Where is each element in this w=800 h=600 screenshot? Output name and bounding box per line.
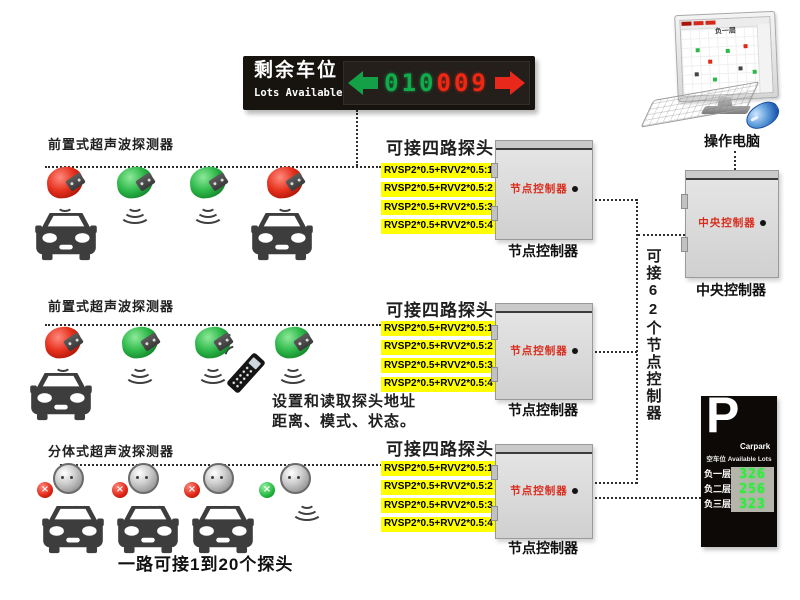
row1-channel-heading: 可接四路探头 xyxy=(386,140,494,157)
node-controller-panel-label: 节点控制器 xyxy=(496,184,592,195)
sign-title: 剩余车位 xyxy=(254,60,338,83)
parking-subtitle: 空车位 Available Lots xyxy=(701,457,777,464)
led-indicator-red: × xyxy=(184,482,200,498)
row3-label: 分体式超声波探测器 xyxy=(48,445,174,458)
connector-trunk-to-central xyxy=(638,234,685,236)
box-top-band xyxy=(496,304,592,313)
wire-spec: RVSP2*0.5+RVV2*0.5:4 xyxy=(381,377,496,392)
split-ultrasonic-sensor xyxy=(128,463,159,494)
floor-label: 负二层 xyxy=(704,482,731,497)
box-hinge xyxy=(491,465,498,480)
central-controller: 中央控制器 xyxy=(685,170,779,278)
wire-spec: RVSP2*0.5+RVV2*0.5:3 xyxy=(381,498,496,513)
row1-channel-lines: RVSP2*0.5+RVV2*0.5:1 RVSP2*0.5+RVV2*0.5:… xyxy=(381,163,496,237)
remote-note-line1: 设置和读取探头地址 xyxy=(272,392,416,412)
node-controller-panel-label: 节点控制器 xyxy=(496,486,592,497)
row3-channel-lines: RVSP2*0.5+RVV2*0.5:1 RVSP2*0.5+RVV2*0.5:… xyxy=(381,461,496,535)
sound-waves-icon xyxy=(290,497,324,517)
ultrasonic-sensor-red xyxy=(265,165,304,200)
indicator-dot xyxy=(572,186,578,192)
indicator-dot xyxy=(572,348,578,354)
wire-spec: RVSP2*0.5+RVV2*0.5:2 xyxy=(381,480,496,495)
box-hinge xyxy=(491,206,498,221)
box-hinge xyxy=(681,237,688,252)
row2-label: 前置式超声波探测器 xyxy=(48,300,174,313)
trunk-capacity-note: 可接62个节点控制器 xyxy=(644,248,661,422)
ultrasonic-sensor-green xyxy=(273,325,312,360)
box-top-band xyxy=(686,171,778,180)
digits-green: 010 xyxy=(384,69,436,97)
led-indicator-green: × xyxy=(259,482,275,498)
box-hinge xyxy=(491,325,498,340)
box-hinge xyxy=(491,367,498,382)
node-controller-panel-label: 节点控制器 xyxy=(496,346,592,357)
ultrasonic-sensor-red xyxy=(45,165,84,200)
sound-waves-icon xyxy=(118,200,152,220)
indicator-dot xyxy=(760,220,766,226)
floor-row: 负二层 256 xyxy=(704,482,774,497)
connector-node1-to-trunk xyxy=(591,199,637,201)
led-indicator-red: × xyxy=(112,482,128,498)
floor-count: 256 xyxy=(731,482,774,497)
floor-row: 负三层 323 xyxy=(704,497,774,512)
node-controller-3-caption: 节点控制器 xyxy=(495,541,591,555)
connector-computer-to-central xyxy=(734,151,736,170)
box-hinge xyxy=(491,506,498,521)
split-ultrasonic-sensor xyxy=(280,463,311,494)
led-indicator-red: × xyxy=(37,482,53,498)
car-icon xyxy=(117,505,179,555)
wire-spec: RVSP2*0.5+RVV2*0.5:3 xyxy=(381,358,496,373)
ultrasonic-sensor-green xyxy=(120,325,159,360)
node-controller-1-caption: 节点控制器 xyxy=(495,244,591,258)
wire-spec: RVSP2*0.5+RVV2*0.5:2 xyxy=(381,340,496,355)
monitor-screen: 负一层 xyxy=(679,16,773,97)
sign-subtitle: Lots Available xyxy=(254,88,343,99)
remote-note: 设置和读取探头地址 距离、模式、状态。 xyxy=(272,392,416,432)
car-icon xyxy=(35,212,97,262)
split-ultrasonic-sensor xyxy=(203,463,234,494)
connector-node2-to-trunk xyxy=(591,351,637,353)
floor-label: 负三层 xyxy=(704,497,731,512)
row2-channel-lines: RVSP2*0.5+RVV2*0.5:1 RVSP2*0.5+RVV2*0.5:… xyxy=(381,321,496,395)
parking-p-letter: P xyxy=(706,390,739,440)
car-icon xyxy=(30,372,92,422)
connector-trunk xyxy=(636,199,638,484)
box-hinge xyxy=(681,194,688,209)
wire-spec: RVSP2*0.5+RVV2*0.5:1 xyxy=(381,163,496,178)
indicator-dot xyxy=(572,488,578,494)
box-top-band xyxy=(496,141,592,150)
wire-spec: RVSP2*0.5+RVV2*0.5:3 xyxy=(381,200,496,215)
car-icon xyxy=(42,505,104,555)
node-controller-3: 节点控制器 xyxy=(495,444,593,539)
parking-floor-sign: P Carpark 空车位 Available Lots 负一层 326 负二层… xyxy=(701,396,777,547)
row3-channel-heading: 可接四路探头 xyxy=(386,441,494,458)
digits-red: 009 xyxy=(437,69,489,97)
sound-waves-icon xyxy=(276,360,310,380)
ultrasonic-sensor-green xyxy=(115,165,154,200)
node-controller-2: 节点控制器 xyxy=(495,303,593,400)
floor-row: 负一层 326 xyxy=(704,467,774,482)
node-controller-2-caption: 节点控制器 xyxy=(495,403,591,417)
sound-waves-icon xyxy=(196,360,230,380)
remote-note-line2: 距离、模式、状态。 xyxy=(272,412,416,432)
sign-digit-panel: 010009 xyxy=(343,61,530,105)
parking-floor-rows: 负一层 326 负二层 256 负三层 323 xyxy=(704,467,774,512)
wire-spec: RVSP2*0.5+RVV2*0.5:2 xyxy=(381,182,496,197)
floor-count: 326 xyxy=(731,467,774,482)
computer-caption: 操作电脑 xyxy=(690,134,774,148)
row3-capacity-caption: 一路可接1到20个探头 xyxy=(118,556,293,573)
floor-count: 323 xyxy=(731,497,774,512)
central-controller-panel-label: 中央控制器 xyxy=(686,218,778,229)
box-hinge xyxy=(491,163,498,178)
connector-node3-to-sign xyxy=(591,497,701,499)
node-controller-1: 节点控制器 xyxy=(495,140,593,240)
sound-waves-icon xyxy=(123,360,157,380)
split-ultrasonic-sensor xyxy=(53,463,84,494)
ultrasonic-sensor-red xyxy=(43,325,82,360)
wire-spec: RVSP2*0.5+RVV2*0.5:1 xyxy=(381,321,496,336)
connector-sign-to-row1 xyxy=(356,110,358,166)
row1-label: 前置式超声波探测器 xyxy=(48,138,174,151)
floor-label: 负一层 xyxy=(704,467,731,482)
parking-guidance-system-diagram: 剩余车位 Lots Available 010009 负一层 操作电脑 前置式超… xyxy=(0,0,800,600)
car-icon xyxy=(192,505,254,555)
car-icon xyxy=(251,212,313,262)
lots-available-sign: 剩余车位 Lots Available 010009 xyxy=(243,56,535,110)
connector-node3-to-trunk xyxy=(591,482,637,484)
wire-spec: RVSP2*0.5+RVV2*0.5:1 xyxy=(381,461,496,476)
red-right-arrow-icon xyxy=(495,71,525,95)
box-top-band xyxy=(496,445,592,454)
sound-waves-icon xyxy=(191,200,225,220)
ultrasonic-sensor-green xyxy=(188,165,227,200)
sign-digits: 010009 xyxy=(384,71,489,95)
parking-brand: Carpark xyxy=(740,443,770,451)
green-left-arrow-icon xyxy=(348,71,378,95)
screen-sidebar xyxy=(757,24,773,93)
connector-row2-bus xyxy=(45,324,381,326)
central-controller-caption: 中央控制器 xyxy=(685,283,777,297)
wire-spec: RVSP2*0.5+RVV2*0.5:4 xyxy=(381,517,496,532)
wire-spec: RVSP2*0.5+RVV2*0.5:4 xyxy=(381,219,496,234)
remote-keypad xyxy=(231,364,254,389)
row2-channel-heading: 可接四路探头 xyxy=(386,302,494,319)
